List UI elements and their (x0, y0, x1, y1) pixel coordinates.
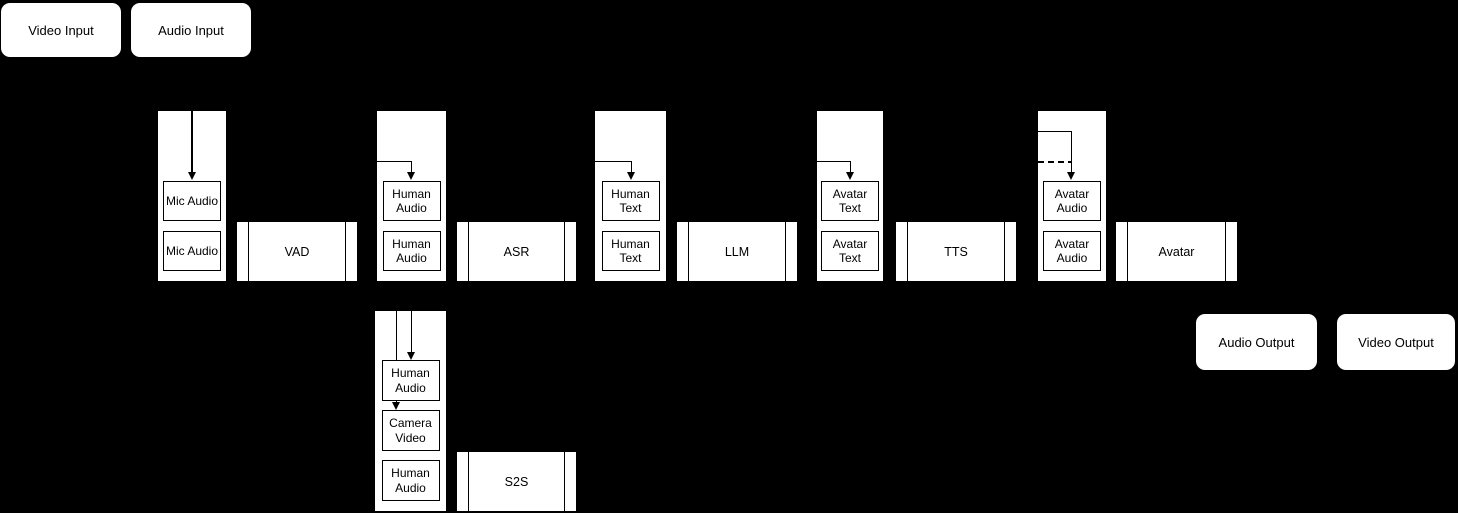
process-s2s: S2S (457, 452, 576, 511)
pipeline-diagram: Video Input Audio Input Mic Audio Mic Au… (0, 0, 1458, 513)
process-side-bar (564, 452, 565, 511)
process-side-bar (345, 222, 346, 281)
arrowhead-down-icon (392, 402, 400, 410)
flow-line (817, 161, 851, 162)
process-side-bar (1127, 222, 1128, 281)
queue-item: Human Audio (382, 360, 440, 401)
terminal-audio-output: Audio Output (1196, 314, 1317, 370)
arrowhead-down-icon (407, 352, 415, 360)
process-label: VAD (285, 245, 310, 259)
process-label: ASR (504, 245, 530, 259)
process-side-bar (248, 222, 249, 281)
queue-human-text: Human Text Human Text (595, 111, 666, 281)
process-label: S2S (505, 475, 529, 489)
queue-item: Avatar Text (821, 231, 879, 271)
queue-item: Mic Audio (163, 181, 221, 221)
queue-item: Human Text (602, 231, 660, 271)
queue-item: Human Audio (382, 460, 440, 501)
terminal-audio-input: Audio Input (131, 3, 251, 57)
queue-mic-audio: Mic Audio Mic Audio (158, 111, 226, 281)
process-side-bar (785, 222, 786, 281)
process-tts: TTS (896, 222, 1016, 281)
arrowhead-down-icon (407, 172, 415, 180)
queue-item: Camera Video (382, 410, 440, 451)
process-asr: ASR (457, 222, 576, 281)
process-side-bar (468, 222, 469, 281)
flow-line (411, 311, 412, 353)
arrowhead-down-icon (627, 172, 635, 180)
process-side-bar (907, 222, 908, 281)
flow-line-dashed (1038, 161, 1071, 163)
terminal-video-output: Video Output (1337, 314, 1455, 370)
flow-line (1038, 131, 1072, 132)
process-label: Avatar (1159, 245, 1195, 259)
terminal-video-input: Video Input (1, 3, 121, 57)
arrowhead-down-icon (1067, 172, 1075, 180)
process-label: LLM (725, 245, 749, 259)
queue-item: Mic Audio (163, 231, 221, 271)
arrowhead-down-icon (188, 172, 196, 180)
queue-item: Avatar Audio (1043, 181, 1101, 221)
arrowhead-down-icon (846, 172, 854, 180)
queue-item: Avatar Audio (1043, 231, 1101, 271)
process-side-bar (1225, 222, 1226, 281)
process-side-bar (1004, 222, 1005, 281)
flow-line (1071, 131, 1072, 173)
queue-item: Human Audio (383, 231, 441, 271)
process-avatar: Avatar (1116, 222, 1237, 281)
queue-item: Human Text (602, 181, 660, 221)
queue-item: Avatar Text (821, 181, 879, 221)
process-label: TTS (944, 245, 968, 259)
queue-avatar-audio: Avatar Audio Avatar Audio (1038, 111, 1106, 281)
queue-human-audio: Human Audio Human Audio (377, 111, 446, 281)
process-side-bar (564, 222, 565, 281)
process-side-bar (688, 222, 689, 281)
queue-s2s-input: Human Audio Camera Video Human Audio (375, 311, 446, 511)
flow-line (191, 111, 192, 172)
process-llm: LLM (677, 222, 797, 281)
flow-line (595, 161, 632, 162)
queue-avatar-text: Avatar Text Avatar Text (817, 111, 883, 281)
queue-item: Human Audio (383, 181, 441, 221)
process-vad: VAD (237, 222, 357, 281)
flow-line (377, 161, 412, 162)
process-side-bar (468, 452, 469, 511)
